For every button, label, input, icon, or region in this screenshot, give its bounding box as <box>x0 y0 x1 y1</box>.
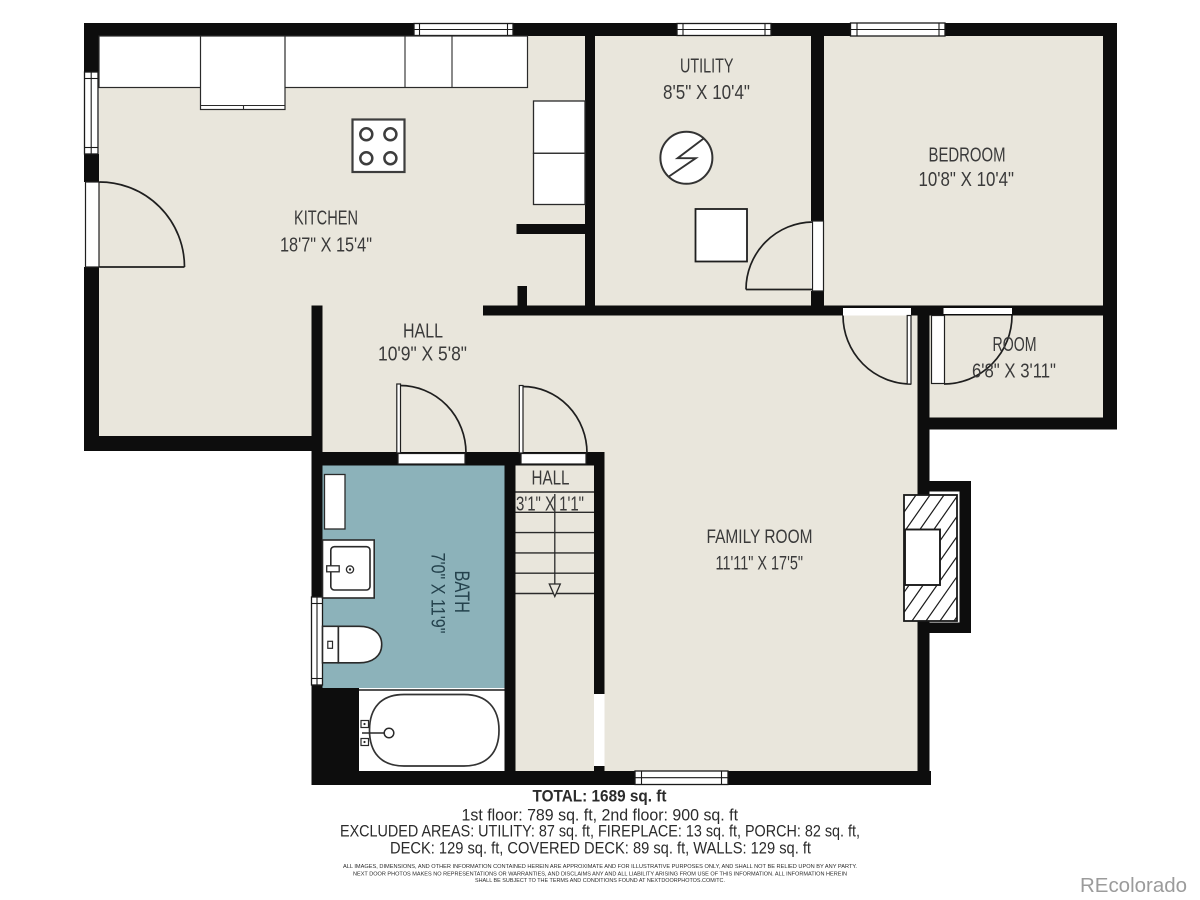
svg-text:11'11" X 17'5": 11'11" X 17'5" <box>716 554 804 575</box>
svg-text:KITCHEN: KITCHEN <box>294 207 358 230</box>
svg-text:6'8" X 3'11": 6'8" X 3'11" <box>972 361 1056 383</box>
svg-text:NEXT DOOR PHOTOS MAKES NO REPR: NEXT DOOR PHOTOS MAKES NO REPRESENTATION… <box>353 872 847 878</box>
svg-text:BATH: BATH <box>450 571 474 614</box>
svg-text:8'5" X 10'4": 8'5" X 10'4" <box>663 82 750 104</box>
svg-text:REcolorado: REcolorado <box>1080 874 1187 897</box>
svg-text:10'9" X 5'8": 10'9" X 5'8" <box>378 344 467 366</box>
svg-text:BEDROOM: BEDROOM <box>929 144 1006 167</box>
svg-text:18'7" X 15'4": 18'7" X 15'4" <box>280 235 372 257</box>
svg-text:UTILITY: UTILITY <box>680 55 734 78</box>
svg-text:3'1" X 1'1": 3'1" X 1'1" <box>516 494 584 516</box>
svg-text:ROOM: ROOM <box>993 333 1037 356</box>
svg-text:ALL IMAGES, DIMENSIONS, AND OT: ALL IMAGES, DIMENSIONS, AND OTHER INFORM… <box>343 864 857 870</box>
svg-text:7'0" X 11'9": 7'0" X 11'9" <box>427 553 448 634</box>
svg-text:HALL: HALL <box>403 320 443 343</box>
svg-text:HALL: HALL <box>532 467 570 490</box>
svg-text:TOTAL: 1689 sq. ft: TOTAL: 1689 sq. ft <box>533 787 667 806</box>
svg-text:DECK: 129 sq. ft, COVERED DECK: DECK: 129 sq. ft, COVERED DECK: 89 sq. f… <box>390 839 811 858</box>
svg-text:10'8" X 10'4": 10'8" X 10'4" <box>919 169 1015 191</box>
svg-text:FAMILY ROOM: FAMILY ROOM <box>707 526 813 548</box>
svg-text:SHALL BE SUBJECT TO THE TERMS: SHALL BE SUBJECT TO THE TERMS AND CONDIT… <box>475 878 725 884</box>
